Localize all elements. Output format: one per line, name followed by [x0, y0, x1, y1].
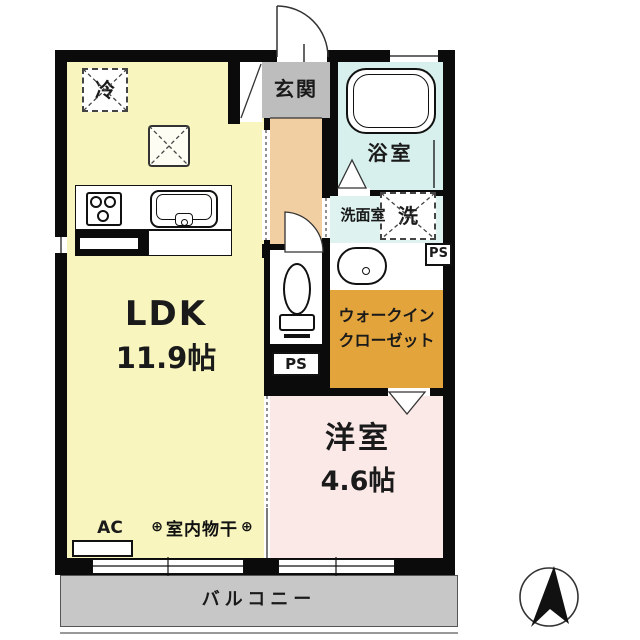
- north-compass-icon: [520, 566, 578, 627]
- wall-entrance-left: [228, 57, 240, 124]
- washbasin-icon: [337, 247, 387, 285]
- stove-burner-icon: [90, 196, 102, 208]
- walk-in-closet-label: ウォークイン クローゼット: [330, 299, 443, 359]
- balcony-edge-line: [60, 632, 458, 634]
- walk-in-closet-line1: ウォークイン: [338, 304, 434, 329]
- toilet-icon: [283, 263, 311, 315]
- laundry-hook-icon: ⊕: [241, 519, 253, 535]
- washbasin-drain-icon: [362, 267, 370, 275]
- western-room-label: 洋室: [278, 418, 438, 458]
- opening-ldk-hallway: [262, 130, 270, 240]
- closet-doorway: [388, 388, 430, 396]
- stove-burner-icon: [104, 196, 116, 208]
- ldk-label: LDK: [85, 294, 247, 336]
- window-ldk-balcony: [92, 559, 244, 574]
- toilet-base: [284, 334, 310, 338]
- washroom-label: 洗面室: [330, 204, 396, 226]
- opening-hallway-washroom: [322, 198, 330, 238]
- pipe-space-lower: PS: [272, 352, 320, 376]
- kitchen-partition-slot: [80, 238, 138, 249]
- toilet-tank: [279, 314, 315, 331]
- air-conditioner-label: AC: [88, 517, 132, 539]
- laundry-hook-icon: ⊕: [151, 519, 163, 535]
- indoor-laundry-label: 室内物干: [166, 515, 238, 540]
- ceiling-hatch-icon: [148, 125, 190, 167]
- shoe-cabinet: [240, 62, 262, 122]
- balcony-label: バルコニー: [60, 588, 458, 612]
- western-room-size-label: 4.6帖: [278, 464, 438, 500]
- indoor-laundry-pole: ⊕ 室内物干 ⊕: [132, 514, 272, 540]
- bathtub-inner: [353, 74, 429, 128]
- stove-burner-icon: [97, 210, 109, 222]
- window-bathroom: [390, 50, 438, 62]
- walk-in-closet-line2: クローゼット: [338, 329, 434, 354]
- entrance-doorway: [277, 50, 327, 62]
- window-left-wall: [55, 237, 67, 253]
- pipe-space-upper: PS: [425, 243, 452, 266]
- faucet-drain-icon: [181, 219, 188, 226]
- bathroom-label: 浴室: [338, 140, 443, 166]
- room-hallway: [270, 118, 322, 250]
- kitchen-pass-through: [148, 230, 232, 256]
- window-western-balcony: [278, 559, 395, 574]
- ldk-size-label: 11.9帖: [85, 340, 247, 378]
- entrance-label: 玄関: [262, 76, 330, 102]
- air-conditioner-box: [72, 540, 133, 557]
- refrigerator-space: 冷: [82, 68, 128, 112]
- floor-plan: 冷 洗 PS PS AC ⊕ 室内物干 ⊕ LDK 11.9帖 洋室 4.6帖 …: [0, 0, 640, 640]
